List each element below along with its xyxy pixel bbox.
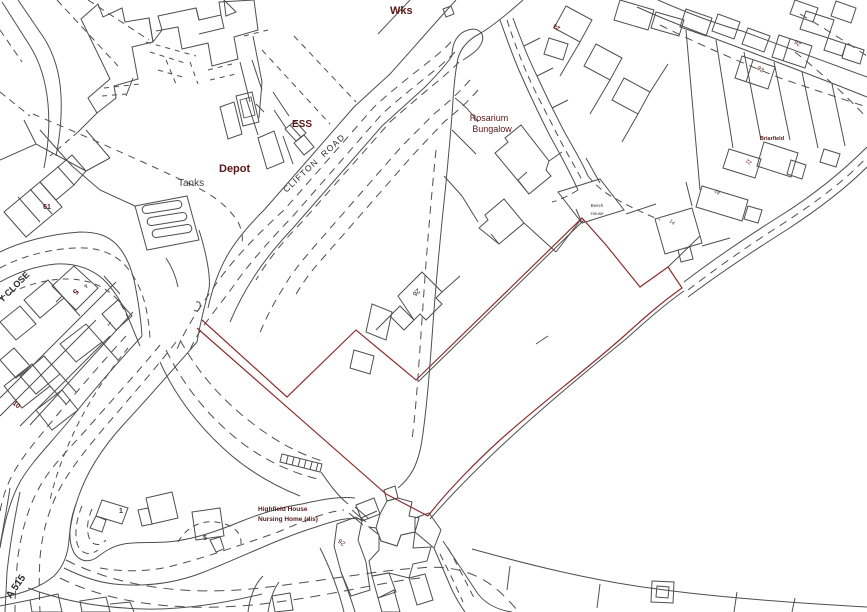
svg-text:House: House: [590, 211, 604, 216]
svg-text:ESS: ESS: [292, 119, 312, 130]
svg-text:1: 1: [119, 508, 123, 515]
svg-text:61: 61: [43, 204, 51, 211]
svg-text:Highfield House: Highfield House: [258, 506, 308, 513]
svg-text:Briarfield: Briarfield: [760, 136, 784, 142]
svg-text:Tanks: Tanks: [178, 178, 204, 189]
svg-text:Beech: Beech: [591, 203, 604, 208]
svg-text:Wks: Wks: [390, 5, 413, 17]
svg-text:5: 5: [203, 535, 207, 542]
svg-text:Depot: Depot: [219, 163, 251, 175]
svg-text:Bungalow: Bungalow: [472, 124, 512, 134]
svg-text:Nursing Home (dis): Nursing Home (dis): [258, 516, 318, 523]
svg-text:Rosarium: Rosarium: [470, 113, 509, 123]
